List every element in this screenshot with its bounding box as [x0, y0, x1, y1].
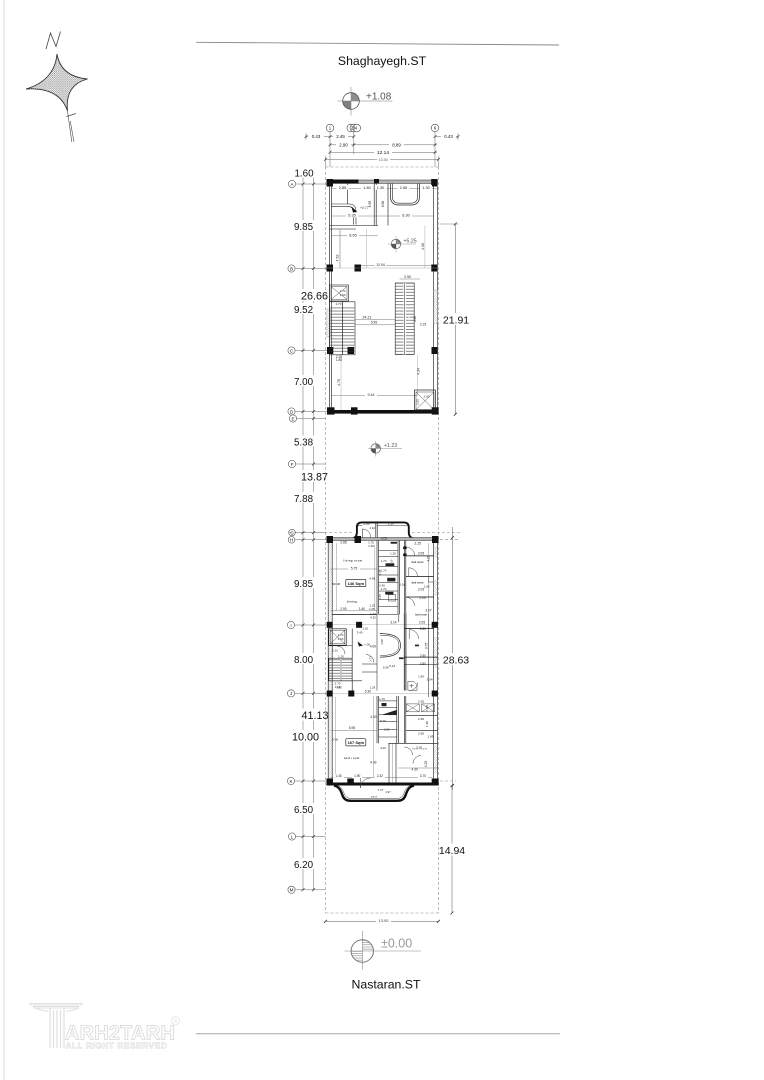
svg-text:G: G — [290, 530, 294, 535]
svg-text:ALL RIGHT RESERVED: ALL RIGHT RESERVED — [66, 1041, 168, 1051]
svg-text:2.25: 2.25 — [414, 542, 421, 546]
svg-text:+5.25: +5.25 — [404, 238, 417, 244]
svg-text:7.88: 7.88 — [294, 494, 314, 505]
svg-text:7.17: 7.17 — [378, 788, 384, 792]
svg-text:2.32: 2.32 — [377, 774, 383, 778]
svg-text:2.05: 2.05 — [419, 596, 425, 600]
svg-text:±0.00: ±0.00 — [381, 936, 412, 950]
svg-text:1.45: 1.45 — [335, 774, 341, 778]
svg-text:2.60: 2.60 — [418, 732, 424, 736]
svg-text:I: I — [290, 623, 291, 628]
svg-text:1.80: 1.80 — [363, 186, 370, 190]
svg-text:3.75: 3.75 — [424, 643, 428, 649]
svg-text:6.20: 6.20 — [294, 860, 314, 871]
svg-text:1.10: 1.10 — [363, 626, 369, 630]
svg-text:12.14: 12.14 — [377, 150, 389, 156]
svg-text:R: R — [174, 1019, 178, 1025]
svg-text:9.98: 9.98 — [332, 737, 338, 741]
svg-text:4.52: 4.52 — [336, 255, 340, 262]
svg-text:9.44: 9.44 — [368, 393, 375, 397]
svg-text:9.85: 9.85 — [294, 579, 314, 590]
svg-text:B: B — [290, 266, 293, 271]
svg-text:1.10: 1.10 — [370, 526, 376, 530]
svg-text:1.70: 1.70 — [381, 569, 387, 573]
svg-text:5.09: 5.09 — [383, 665, 389, 669]
svg-text:1.30: 1.30 — [377, 186, 384, 190]
svg-text:bed room: bed room — [415, 613, 428, 617]
svg-text:1.90: 1.90 — [354, 774, 360, 778]
svg-text:8.89: 8.89 — [392, 142, 401, 147]
svg-text:+1.23: +1.23 — [384, 443, 397, 449]
svg-text:1.85: 1.85 — [424, 585, 430, 589]
svg-text:13.87: 13.87 — [301, 472, 328, 484]
svg-text:2.00: 2.00 — [424, 395, 430, 399]
svg-text:3.07: 3.07 — [425, 609, 431, 613]
svg-text:3.30: 3.30 — [336, 686, 342, 690]
svg-text:5.79: 5.79 — [380, 719, 386, 723]
svg-text:1.26: 1.26 — [390, 552, 396, 556]
svg-text:4.30: 4.30 — [411, 768, 418, 772]
svg-text:bed room: bed room — [412, 747, 428, 751]
svg-text:4.26: 4.26 — [380, 746, 386, 750]
svg-text:bed room: bed room — [344, 756, 360, 760]
svg-text:2.65: 2.65 — [340, 541, 347, 545]
svg-text:5.95: 5.95 — [371, 321, 377, 325]
svg-text:6.50: 6.50 — [294, 805, 314, 816]
svg-text:4.96: 4.96 — [369, 577, 375, 581]
svg-text:Shaghayegh.ST: Shaghayegh.ST — [338, 54, 427, 68]
svg-text:2.85: 2.85 — [400, 186, 407, 190]
svg-text:4.70: 4.70 — [337, 379, 341, 386]
svg-text:5.30: 5.30 — [365, 689, 371, 693]
svg-text:5.35: 5.35 — [348, 214, 355, 218]
svg-text:1.70: 1.70 — [379, 697, 385, 701]
svg-text:F: F — [291, 462, 294, 467]
svg-text:1.95: 1.95 — [425, 721, 429, 727]
svg-text:146 Sqm: 146 Sqm — [348, 581, 365, 586]
svg-text:167 Sqm: 167 Sqm — [348, 740, 365, 745]
svg-text:5.14: 5.14 — [389, 664, 395, 668]
svg-text:M: M — [290, 888, 294, 893]
svg-text:1.70: 1.70 — [381, 559, 387, 563]
svg-text:5.75: 5.75 — [351, 566, 358, 570]
svg-text:1.20: 1.20 — [368, 544, 374, 548]
svg-text:2.50: 2.50 — [388, 522, 394, 526]
svg-text:1.26: 1.26 — [390, 559, 394, 565]
svg-text:0.43: 0.43 — [312, 134, 321, 139]
svg-text:21.91: 21.91 — [443, 314, 469, 326]
svg-text:Nastaran.ST: Nastaran.ST — [351, 978, 421, 992]
svg-text:5.38: 5.38 — [294, 438, 314, 449]
svg-text:26.66: 26.66 — [301, 291, 328, 303]
svg-text:living room: living room — [344, 558, 363, 562]
svg-text:1.90: 1.90 — [418, 675, 424, 679]
svg-text:bed room: bed room — [412, 580, 425, 584]
svg-text:1.60: 1.60 — [294, 169, 314, 180]
svg-text:28.63: 28.63 — [443, 654, 469, 666]
svg-text:2.80: 2.80 — [420, 654, 426, 658]
svg-text:bed room: bed room — [412, 560, 425, 564]
svg-text:E: E — [291, 416, 294, 421]
svg-text:3.90: 3.90 — [407, 316, 411, 322]
svg-text:7.00: 7.00 — [294, 377, 314, 388]
svg-text:1.60: 1.60 — [338, 637, 344, 641]
svg-text:2.00: 2.00 — [416, 399, 420, 405]
svg-text:2.85: 2.85 — [339, 186, 346, 190]
svg-text:2.20: 2.20 — [336, 336, 342, 340]
svg-text:1.95: 1.95 — [425, 705, 429, 711]
svg-text:4.90: 4.90 — [413, 316, 417, 322]
svg-text:2.05: 2.05 — [418, 551, 424, 555]
svg-text:4.95: 4.95 — [368, 201, 372, 208]
svg-text:1.98: 1.98 — [380, 639, 384, 645]
svg-text:1.70: 1.70 — [381, 587, 387, 591]
svg-text:8.00: 8.00 — [294, 655, 314, 666]
svg-text:13.00: 13.00 — [378, 918, 389, 923]
svg-text:2.70: 2.70 — [336, 302, 342, 306]
svg-text:2.15: 2.15 — [420, 323, 426, 327]
svg-text:1.60: 1.60 — [359, 607, 365, 611]
svg-text:2.45: 2.45 — [336, 134, 345, 139]
svg-text:+1.08: +1.08 — [366, 92, 392, 103]
svg-text:2.90: 2.90 — [339, 142, 348, 147]
svg-text:90.90: 90.90 — [332, 582, 340, 586]
svg-text:3.04: 3.04 — [427, 678, 433, 682]
svg-text:3.02: 3.02 — [381, 537, 388, 541]
svg-text:1.29: 1.29 — [370, 686, 376, 690]
svg-text:3.70: 3.70 — [420, 774, 426, 778]
svg-text:9.52: 9.52 — [294, 305, 313, 316]
svg-text:9.85: 9.85 — [294, 222, 314, 233]
svg-text:2.90: 2.90 — [404, 275, 411, 279]
svg-text:24.21: 24.21 — [363, 315, 372, 319]
svg-text:1.30: 1.30 — [422, 186, 429, 190]
svg-text:L: L — [291, 834, 294, 839]
svg-text:2.80: 2.80 — [420, 627, 426, 631]
svg-text:5.95: 5.95 — [349, 726, 356, 730]
svg-text:13.00: 13.00 — [379, 158, 388, 162]
svg-text:1.60: 1.60 — [340, 293, 346, 297]
svg-text:4.30: 4.30 — [421, 243, 425, 250]
svg-text:2.90: 2.90 — [340, 607, 346, 611]
svg-text:234: 234 — [351, 126, 358, 131]
svg-text:1.97: 1.97 — [385, 790, 391, 794]
svg-text:4.96: 4.96 — [381, 201, 385, 208]
svg-text:1.80: 1.80 — [336, 358, 342, 362]
svg-text:14.94: 14.94 — [439, 845, 465, 857]
svg-text:porch: porch — [371, 795, 378, 798]
svg-text:10.00: 10.00 — [292, 732, 319, 744]
svg-text:2.60: 2.60 — [418, 717, 424, 721]
svg-text:41.13: 41.13 — [301, 710, 328, 722]
svg-text:2.05: 2.05 — [418, 700, 424, 704]
svg-text:H: H — [290, 538, 293, 543]
svg-text:6.16: 6.16 — [399, 583, 405, 587]
svg-text:3.45: 3.45 — [378, 594, 382, 600]
svg-text:3.14: 3.14 — [390, 620, 396, 624]
svg-text:4.34: 4.34 — [417, 368, 421, 375]
svg-text:0.43: 0.43 — [444, 134, 453, 139]
svg-text:J: J — [290, 691, 292, 696]
svg-text:2.10: 2.10 — [332, 649, 338, 653]
svg-text:6.30: 6.30 — [402, 214, 409, 218]
svg-text:1.85: 1.85 — [427, 734, 433, 738]
svg-text:2.96: 2.96 — [384, 728, 390, 732]
svg-text:3.40: 3.40 — [357, 630, 363, 634]
svg-text:4.32: 4.32 — [370, 615, 376, 619]
svg-text:1.25: 1.25 — [369, 607, 375, 611]
svg-text:4.00: 4.00 — [370, 644, 377, 648]
svg-text:dining: dining — [347, 599, 357, 603]
svg-text:8.65: 8.65 — [349, 233, 356, 237]
svg-text:12.04: 12.04 — [376, 263, 385, 267]
svg-text:4.25: 4.25 — [424, 761, 428, 768]
svg-text:2.05: 2.05 — [419, 620, 425, 624]
